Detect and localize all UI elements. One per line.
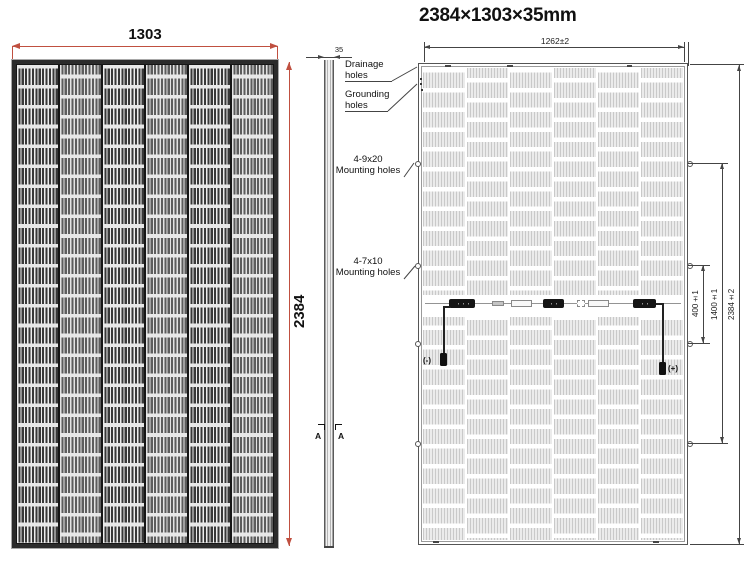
leader-underline — [345, 111, 388, 112]
dim-2384-line — [739, 65, 740, 544]
drainage-hole — [445, 65, 451, 67]
drainage-holes-label: Drainage holes — [345, 60, 384, 81]
label-line: holes — [345, 71, 384, 82]
extension-line — [12, 46, 13, 60]
front-cell-column — [232, 65, 273, 543]
extension-line — [277, 46, 278, 60]
junction-box — [449, 299, 475, 308]
label-line: Mounting holes — [326, 268, 410, 279]
positive-cable — [662, 303, 664, 363]
thickness-dimension-label: 35 — [330, 45, 348, 54]
connector-body — [588, 300, 609, 307]
connector-outline — [577, 300, 585, 307]
front-cell-column — [146, 65, 187, 543]
drawing-title: 2384×1303×35mm — [419, 5, 576, 27]
extension-line — [424, 42, 425, 62]
dimension-arrow-icon — [286, 62, 292, 70]
front-height-dimension-label: 2384 — [291, 280, 309, 342]
extension-line — [690, 544, 744, 545]
label-line: Grounding — [345, 90, 389, 101]
negative-polarity-label: (-) — [423, 356, 431, 365]
negative-cable — [443, 306, 445, 354]
positive-connector — [659, 362, 666, 375]
panel-side-view — [324, 60, 334, 548]
front-cell-grid — [16, 64, 274, 544]
dimension-arrow-icon — [720, 437, 724, 443]
section-label-right: A — [338, 431, 344, 441]
drainage-hole — [627, 65, 632, 67]
mounting-hole-7x10 — [415, 341, 421, 347]
label-line: 4-7x10 — [326, 257, 410, 268]
section-mark-icon — [335, 424, 342, 430]
dimension-arrow-icon — [318, 55, 324, 59]
extension-line — [688, 42, 689, 66]
dimension-arrow-icon — [701, 265, 705, 271]
dimension-arrow-icon — [334, 55, 340, 59]
front-cell-column — [103, 65, 144, 543]
mounting-hole-7x10 — [687, 263, 693, 269]
dimension-arrow-icon — [12, 43, 20, 49]
mounting-hole-9x20 — [687, 441, 693, 447]
dim-1400-line — [722, 163, 723, 443]
label-line: Mounting holes — [326, 166, 410, 177]
dim-2384-label: 2384±2 — [727, 270, 738, 338]
mounting-hole-7x10 — [687, 341, 693, 347]
back-top-dimension-label: 1262±2 — [519, 36, 591, 46]
mounting-hole-9x20 — [415, 161, 421, 167]
dim-400-label: 400±1 — [691, 272, 702, 336]
front-width-dimension-label: 1303 — [12, 26, 278, 43]
front-cell-column — [60, 65, 101, 543]
label-line: 4-9x20 — [326, 155, 410, 166]
drainage-hole — [507, 65, 513, 67]
positive-polarity-label: (+) — [668, 364, 678, 373]
dimension-arrow-icon — [720, 163, 724, 169]
solar-panel-dimension-drawing: 1303 2384 35 A A 2384×1303×35mm 1262±2 — [0, 0, 750, 561]
back-top-dimension-line — [424, 47, 684, 48]
mounting-holes-9x20-label: 4-9x20 Mounting holes — [326, 155, 410, 176]
thickness-dimension-line — [306, 57, 352, 58]
connector-body — [511, 300, 532, 307]
panel-front-view — [12, 60, 278, 548]
section-label-left: A — [315, 431, 321, 441]
extension-line — [688, 343, 710, 344]
extension-line — [684, 42, 685, 62]
dim-1400-label: 1400±1 — [710, 270, 721, 338]
dimension-arrow-icon — [737, 538, 741, 544]
grounding-holes-label: Grounding holes — [345, 90, 389, 111]
grounding-hole — [421, 89, 423, 91]
mounting-hole-7x10 — [415, 263, 421, 269]
junction-box — [543, 299, 564, 308]
leader-underline — [345, 81, 392, 82]
front-height-dimension-line — [289, 62, 290, 546]
mounting-holes-7x10-label: 4-7x10 Mounting holes — [326, 257, 410, 278]
dimension-arrow-icon — [286, 538, 292, 546]
dimension-arrow-icon — [737, 65, 741, 71]
grounding-hole — [420, 78, 422, 80]
grounding-hole — [420, 83, 422, 85]
negative-connector — [440, 353, 447, 366]
extension-line — [688, 443, 728, 444]
front-cell-column — [189, 65, 230, 543]
label-line: holes — [345, 101, 389, 112]
label-line: Drainage — [345, 60, 384, 71]
panel-back-view: (-) (+) — [418, 63, 688, 545]
junction-box — [633, 299, 656, 308]
dim-400-line — [703, 265, 704, 343]
section-mark-icon — [318, 424, 325, 430]
extension-line — [688, 265, 710, 266]
dimension-arrow-icon — [701, 337, 705, 343]
front-cell-column — [17, 65, 58, 543]
drainage-hole — [653, 541, 659, 543]
cable-clip — [492, 301, 504, 306]
drainage-hole — [433, 541, 439, 543]
mounting-hole-9x20 — [687, 161, 693, 167]
mounting-hole-9x20 — [415, 441, 421, 447]
front-width-dimension-line — [12, 46, 278, 47]
